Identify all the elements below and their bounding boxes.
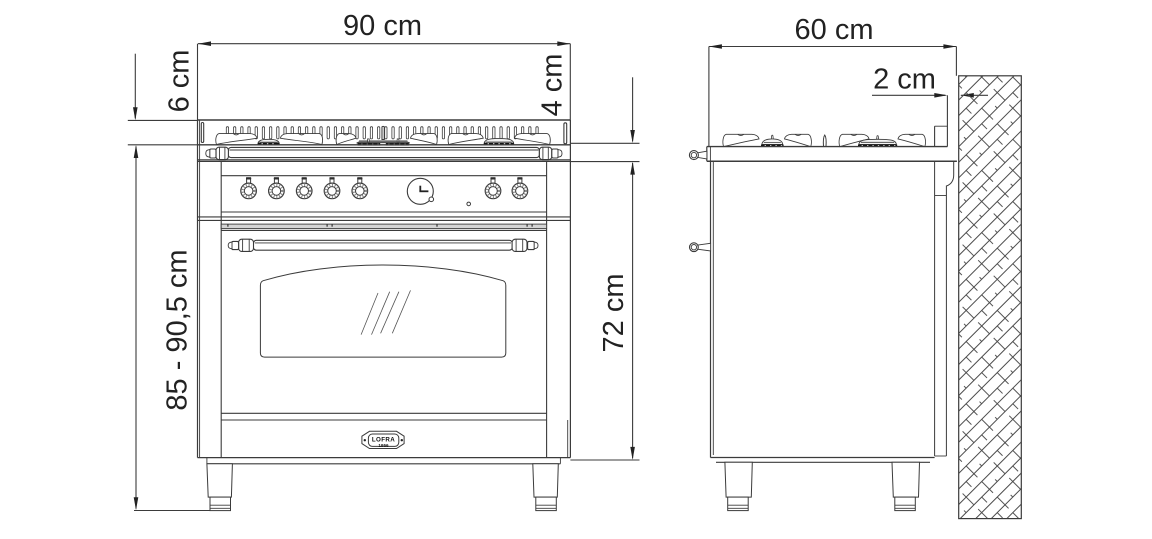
svg-text:6 cm: 6 cm xyxy=(164,50,196,113)
svg-text:4 cm: 4 cm xyxy=(537,54,569,117)
svg-text:72 cm: 72 cm xyxy=(598,274,630,353)
svg-text:85 - 90,5 cm: 85 - 90,5 cm xyxy=(162,249,194,410)
svg-text:90 cm: 90 cm xyxy=(343,10,422,42)
svg-text:2 cm: 2 cm xyxy=(873,64,936,96)
svg-text:60 cm: 60 cm xyxy=(795,14,874,46)
svg-text:1956: 1956 xyxy=(378,443,389,448)
